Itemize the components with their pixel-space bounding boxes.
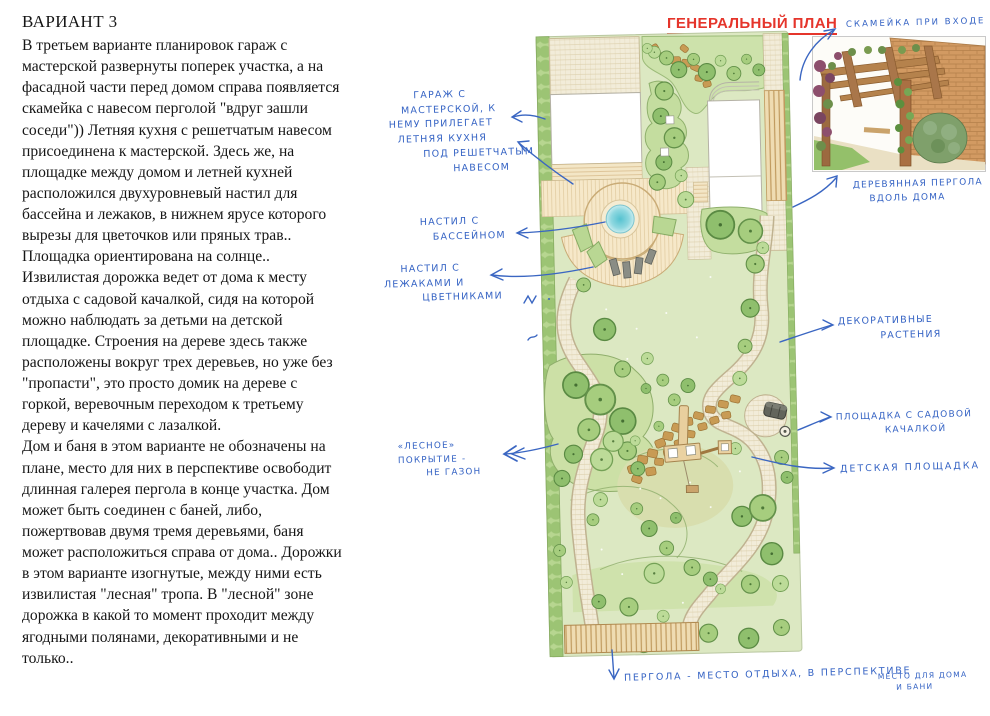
annotation-bottom-pergola-small: МЕСТО ДЛЯ ДОМА И БАНИ (878, 669, 968, 694)
annotation-bench-at-entrance: СКАМЕЙКА ПРИ ВХОДЕ (846, 15, 986, 32)
annotation-swing-area: ПЛОЩАДКА С САДОВОЙ КАЧАЛКОЙ (836, 408, 973, 439)
garden-plan-drawing (530, 25, 806, 663)
house-pergola-strip (764, 90, 786, 200)
climber (686, 485, 698, 492)
variant-title: ВАРИАНТ 3 (22, 12, 348, 32)
bottom-pergola (564, 622, 699, 653)
garden-plan (530, 25, 806, 663)
garage-building (550, 93, 642, 165)
description-column: ВАРИАНТ 3 В третьем варианте планировок … (22, 12, 348, 669)
variant-paragraph-2: Извилистая дорожка ведет от дома к месту… (22, 267, 348, 436)
bush (913, 113, 967, 163)
pergola-illustration (812, 36, 986, 172)
house-building (707, 100, 762, 212)
page: ВАРИАНТ 3 В третьем варианте планировок … (0, 0, 990, 716)
flower-cutout (652, 216, 676, 237)
corridor-steps (693, 182, 707, 202)
ink-squiggle (528, 335, 537, 340)
garage-stairs (552, 163, 642, 181)
pool (606, 205, 635, 234)
annotation-lounger-deck: НАСТИЛ С ЛЕЖАКАМИ И ЦВЕТНИКАМИ (383, 260, 503, 307)
annotation-forest-cover: «ЛЕСНОЕ» ПОКРЫТИЕ - НЕ ГАЗОН (397, 439, 481, 482)
variant-paragraph-3: Дом и баня в этом варианте не обозначены… (22, 436, 348, 668)
annotation-wooden-pergola: ДЕРЕВЯННАЯ ПЕРГОЛА ВДОЛЬ ДОМА (853, 176, 984, 207)
annotation-pool-deck: НАСТИЛ С БАССЕЙНОМ (420, 214, 506, 246)
slide (678, 406, 688, 448)
variant-paragraph-1: В третьем варианте планировок гараж с ма… (22, 35, 348, 267)
annotation-bottom-pergola: ПЕРГОЛА - МЕСТО ОТДЫХА, В ПЕРСПЕКТИВЕ (624, 664, 912, 686)
annotation-playground: ДЕТСКАЯ ПЛОЩАДКА (840, 459, 980, 477)
annotation-garage-workshop: ГАРАЖ С МАСТЕРСКОЙ, К НЕМУ ПРИЛЕГАЕТ ЛЕТ… (388, 86, 535, 178)
pergola-watercolor (812, 36, 986, 172)
driveway (549, 37, 640, 95)
annotation-decorative-plants: ДЕКОРАТИВНЫЕ РАСТЕНИЯ (838, 313, 942, 345)
right-path-top (763, 33, 784, 90)
ink-squiggle (524, 296, 536, 303)
